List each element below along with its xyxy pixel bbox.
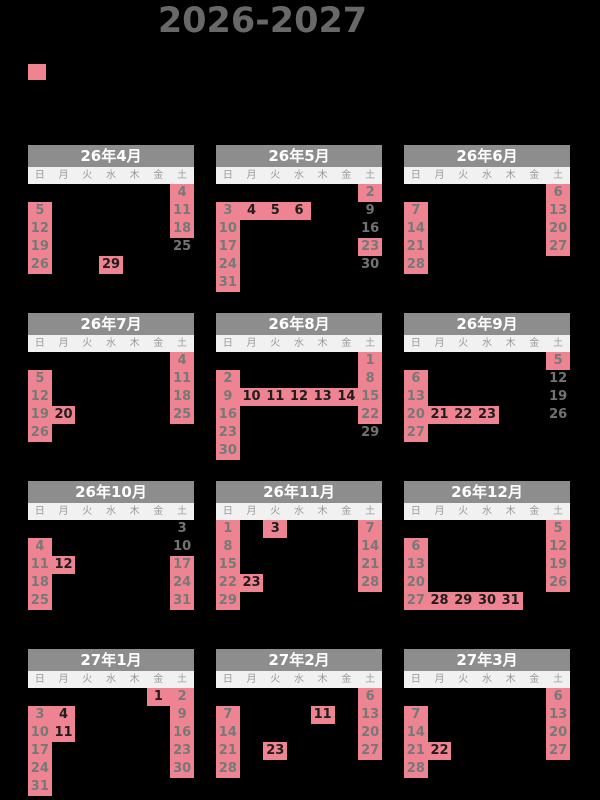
weekday-label: 木: [499, 671, 523, 688]
weekday-label: 水: [475, 335, 499, 352]
weekday-label: 金: [523, 671, 547, 688]
month-days-grid: 411171824253112310: [28, 520, 194, 630]
weekday-header-row: 日月火水木金土: [28, 167, 194, 184]
day-off-date: 11: [28, 556, 52, 574]
month-calendar: 26年7月 日月火水木金土 4511121819252620: [28, 313, 194, 462]
weekday-label: 土: [546, 335, 570, 352]
day-off-date: 17: [216, 238, 240, 256]
month-days-grid: 4511121819262925: [28, 184, 194, 294]
day-off-date: 28: [216, 760, 240, 778]
weekday-label: 水: [99, 335, 123, 352]
weekday-label: 月: [428, 335, 452, 352]
month-days-grid: 5612131920262728293031: [404, 520, 570, 630]
day-off-date: 30: [216, 442, 240, 460]
day-off-date: 6: [358, 688, 382, 706]
day-off-date: 2: [216, 370, 240, 388]
weekday-label: 日: [28, 167, 52, 184]
day-off-date: 20: [404, 406, 428, 424]
holiday-date: 22: [428, 742, 452, 760]
day-off-date: 27: [358, 742, 382, 760]
weekday-label: 土: [358, 671, 382, 688]
weekday-label: 日: [216, 503, 240, 520]
weekday-label: 金: [523, 335, 547, 352]
weekday-label: 火: [451, 503, 475, 520]
weekday-label: 月: [240, 503, 264, 520]
weekday-label: 日: [216, 671, 240, 688]
day-off-date: 7: [404, 202, 428, 220]
weekday-label: 火: [451, 167, 475, 184]
working-weekend-date: 26: [546, 406, 570, 424]
holiday-date: 23: [240, 574, 264, 592]
weekday-header-row: 日月火水木金土: [28, 671, 194, 688]
month-days-grid: 239101617232430311411: [28, 688, 194, 798]
weekday-label: 木: [311, 503, 335, 520]
weekday-label: 金: [335, 503, 359, 520]
weekday-label: 金: [523, 167, 547, 184]
day-off-date: 17: [28, 742, 52, 760]
day-off-date: 20: [546, 220, 570, 238]
holiday-date: 12: [52, 556, 76, 574]
month-title: 27年2月: [216, 649, 382, 671]
day-off-date: 31: [28, 778, 52, 796]
weekday-label: 日: [28, 503, 52, 520]
day-off-date: 25: [170, 406, 194, 424]
holiday-date: 3: [263, 520, 287, 538]
month-days-grid: 178141521222829323: [216, 520, 382, 630]
weekday-label: 金: [335, 167, 359, 184]
month-title: 26年10月: [28, 481, 194, 503]
weekday-label: 水: [99, 167, 123, 184]
month-calendar: 26年5月 日月火水木金土 23101723243145691630: [216, 145, 382, 294]
weekday-label: 水: [99, 671, 123, 688]
holiday-date: 13: [311, 388, 335, 406]
day-off-date: 7: [358, 520, 382, 538]
day-off-date: 24: [170, 574, 194, 592]
month-title: 26年6月: [404, 145, 570, 167]
month-calendar: 26年12月 日月火水木金土 5612131920262728293031: [404, 481, 570, 630]
working-weekend-date: 29: [358, 424, 382, 442]
holiday-date: 4: [240, 202, 264, 220]
day-off-date: 21: [358, 556, 382, 574]
day-off-date: 27: [404, 592, 428, 610]
weekday-label: 土: [170, 503, 194, 520]
month-calendar: 26年10月 日月火水木金土 411171824253112310: [28, 481, 194, 630]
day-off-date: 13: [358, 706, 382, 724]
day-off-date: 19: [28, 406, 52, 424]
weekday-label: 土: [170, 671, 194, 688]
weekday-label: 土: [546, 503, 570, 520]
weekday-label: 月: [240, 335, 264, 352]
day-off-date: 15: [358, 388, 382, 406]
day-off-date: 5: [28, 370, 52, 388]
day-off-date: 28: [404, 760, 428, 778]
day-off-date: 24: [28, 760, 52, 778]
weekday-label: 日: [404, 167, 428, 184]
weekday-header-row: 日月火水木金土: [28, 503, 194, 520]
weekday-label: 土: [358, 335, 382, 352]
day-off-date: 19: [546, 556, 570, 574]
day-off-date: 6: [404, 538, 428, 556]
weekday-label: 日: [404, 671, 428, 688]
month-title: 26年9月: [404, 313, 570, 335]
working-weekend-date: 25: [170, 238, 194, 256]
day-off-date: 6: [546, 184, 570, 202]
weekday-label: 火: [263, 335, 287, 352]
day-off-date: 25: [28, 592, 52, 610]
weekday-label: 月: [52, 335, 76, 352]
day-off-date: 20: [404, 574, 428, 592]
day-off-date: 20: [358, 724, 382, 742]
weekday-label: 月: [428, 503, 452, 520]
day-off-date: 27: [546, 742, 570, 760]
weekday-label: 水: [99, 503, 123, 520]
day-off-date: 27: [546, 238, 570, 256]
holiday-date: 21: [428, 406, 452, 424]
weekday-label: 木: [123, 671, 147, 688]
day-off-date: 16: [170, 724, 194, 742]
day-off-date: 10: [216, 220, 240, 238]
day-off-date: 13: [404, 556, 428, 574]
holiday-date: 29: [99, 256, 123, 274]
day-off-date: 13: [546, 706, 570, 724]
day-off-date: 9: [170, 706, 194, 724]
weekday-label: 木: [499, 167, 523, 184]
weekday-label: 火: [451, 335, 475, 352]
month-days-grid: 671314202127281123: [216, 688, 382, 798]
day-off-date: 8: [216, 538, 240, 556]
day-off-date: 9: [216, 388, 240, 406]
weekday-label: 金: [147, 503, 171, 520]
day-off-date: 2: [170, 688, 194, 706]
weekday-label: 日: [28, 671, 52, 688]
month-title: 26年4月: [28, 145, 194, 167]
day-off-date: 14: [404, 724, 428, 742]
day-off-date: 17: [170, 556, 194, 574]
month-days-grid: 56132027212223121926: [404, 352, 570, 462]
weekday-label: 土: [170, 335, 194, 352]
weekday-label: 木: [123, 167, 147, 184]
day-off-date: 23: [358, 238, 382, 256]
day-off-date: 5: [546, 352, 570, 370]
day-off-date: 7: [216, 706, 240, 724]
weekday-label: 月: [428, 167, 452, 184]
weekday-label: 金: [335, 671, 359, 688]
month-days-grid: 67131420212728: [404, 184, 570, 294]
calendar-page: 2026-2027 26年4月 日月火水木金土 4511121819262925…: [0, 0, 600, 800]
holiday-date: 10: [240, 388, 264, 406]
month-calendar: 26年11月 日月火水木金土 178141521222829323: [216, 481, 382, 630]
working-weekend-date: 16: [358, 220, 382, 238]
month-calendar: 26年9月 日月火水木金土 56132027212223121926: [404, 313, 570, 462]
day-off-date: 6: [546, 688, 570, 706]
month-calendar: 26年8月 日月火水木金土 12891516222330101112131429: [216, 313, 382, 462]
day-off-date: 14: [404, 220, 428, 238]
holiday-date: 28: [428, 592, 452, 610]
holiday-date: 20: [52, 406, 76, 424]
weekday-label: 水: [475, 671, 499, 688]
weekday-label: 水: [287, 335, 311, 352]
day-off-date: 12: [28, 388, 52, 406]
month-title: 27年3月: [404, 649, 570, 671]
weekday-label: 水: [287, 503, 311, 520]
day-off-date: 4: [170, 184, 194, 202]
day-off-date: 11: [170, 202, 194, 220]
weekday-label: 土: [170, 167, 194, 184]
holiday-date: 29: [451, 592, 475, 610]
holiday-date: 30: [475, 592, 499, 610]
weekday-header-row: 日月火水木金土: [404, 503, 570, 520]
weekday-header-row: 日月火水木金土: [404, 335, 570, 352]
day-off-date: 3: [216, 202, 240, 220]
weekday-label: 土: [546, 167, 570, 184]
day-off-date: 10: [28, 724, 52, 742]
holiday-date: 14: [335, 388, 359, 406]
weekday-label: 火: [263, 671, 287, 688]
month-days-grid: 23101723243145691630: [216, 184, 382, 294]
weekday-header-row: 日月火水木金土: [404, 167, 570, 184]
month-title: 26年11月: [216, 481, 382, 503]
day-off-date: 13: [404, 388, 428, 406]
weekday-label: 火: [75, 335, 99, 352]
working-weekend-date: 3: [170, 520, 194, 538]
day-off-date: 14: [216, 724, 240, 742]
holiday-date: 11: [263, 388, 287, 406]
weekday-label: 土: [358, 167, 382, 184]
day-off-date: 1: [358, 352, 382, 370]
weekday-label: 水: [287, 167, 311, 184]
working-weekend-date: 19: [546, 388, 570, 406]
day-off-date: 18: [170, 220, 194, 238]
weekday-label: 金: [523, 503, 547, 520]
month-days-grid: 6713142021272822: [404, 688, 570, 798]
weekday-label: 月: [52, 671, 76, 688]
holiday-date: 31: [499, 592, 523, 610]
day-off-date: 21: [216, 742, 240, 760]
holiday-date: 12: [287, 388, 311, 406]
day-off-date: 27: [404, 424, 428, 442]
weekday-label: 金: [147, 671, 171, 688]
day-off-date: 14: [358, 538, 382, 556]
weekday-label: 火: [75, 167, 99, 184]
month-title: 27年1月: [28, 649, 194, 671]
holiday-date: 23: [475, 406, 499, 424]
day-off-date: 5: [546, 520, 570, 538]
weekday-label: 水: [475, 503, 499, 520]
holiday-date: 6: [287, 202, 311, 220]
weekday-label: 木: [499, 335, 523, 352]
weekday-label: 火: [75, 671, 99, 688]
weekday-label: 木: [123, 335, 147, 352]
weekday-label: 火: [451, 671, 475, 688]
working-weekend-date: 10: [170, 538, 194, 556]
month-title: 26年12月: [404, 481, 570, 503]
day-off-date: 31: [216, 274, 240, 292]
day-off-date: 21: [404, 742, 428, 760]
weekday-header-row: 日月火水木金土: [216, 671, 382, 688]
day-off-date: 16: [216, 406, 240, 424]
weekday-label: 日: [216, 335, 240, 352]
day-off-date: 26: [546, 574, 570, 592]
weekday-label: 土: [546, 671, 570, 688]
holiday-date: 11: [52, 724, 76, 742]
day-off-date: 23: [216, 424, 240, 442]
day-off-date: 15: [216, 556, 240, 574]
day-off-date: 6: [404, 370, 428, 388]
months-grid: 26年4月 日月火水木金土 4511121819262925 26年5月 日月火…: [0, 0, 600, 800]
day-off-date: 22: [358, 406, 382, 424]
month-title: 26年8月: [216, 313, 382, 335]
weekday-label: 月: [240, 671, 264, 688]
weekday-label: 月: [428, 671, 452, 688]
day-off-date: 29: [216, 592, 240, 610]
weekday-header-row: 日月火水木金土: [28, 335, 194, 352]
day-off-date: 4: [170, 352, 194, 370]
day-off-date: 22: [216, 574, 240, 592]
day-off-date: 4: [28, 538, 52, 556]
day-off-date: 11: [170, 370, 194, 388]
weekday-label: 金: [335, 335, 359, 352]
weekday-label: 日: [404, 335, 428, 352]
day-off-date: 23: [170, 742, 194, 760]
day-off-date: 5: [28, 202, 52, 220]
weekday-label: 木: [311, 671, 335, 688]
day-off-date: 2: [358, 184, 382, 202]
month-calendar: 27年2月 日月火水木金土 671314202127281123: [216, 649, 382, 798]
working-weekend-date: 9: [358, 202, 382, 220]
day-off-date: 20: [546, 724, 570, 742]
day-off-date: 18: [28, 574, 52, 592]
day-off-date: 1: [216, 520, 240, 538]
weekday-label: 火: [263, 503, 287, 520]
holiday-date: 4: [52, 706, 76, 724]
holiday-date: 22: [451, 406, 475, 424]
day-off-date: 13: [546, 202, 570, 220]
day-off-date: 21: [404, 238, 428, 256]
weekday-label: 木: [123, 503, 147, 520]
weekday-header-row: 日月火水木金土: [216, 503, 382, 520]
day-off-date: 19: [28, 238, 52, 256]
weekday-label: 土: [358, 503, 382, 520]
weekday-label: 水: [287, 671, 311, 688]
weekday-label: 木: [499, 503, 523, 520]
weekday-label: 金: [147, 167, 171, 184]
day-off-date: 7: [404, 706, 428, 724]
working-weekend-date: 30: [358, 256, 382, 274]
day-off-date: 8: [358, 370, 382, 388]
day-off-date: 28: [404, 256, 428, 274]
weekday-label: 金: [147, 335, 171, 352]
weekday-label: 月: [240, 167, 264, 184]
day-off-date: 24: [216, 256, 240, 274]
holiday-date: 1: [147, 688, 171, 706]
day-off-date: 26: [28, 256, 52, 274]
day-off-date: 30: [170, 760, 194, 778]
day-off-date: 26: [28, 424, 52, 442]
month-days-grid: 4511121819252620: [28, 352, 194, 462]
working-weekend-date: 12: [546, 370, 570, 388]
weekday-label: 水: [475, 167, 499, 184]
day-off-date: 28: [358, 574, 382, 592]
weekday-label: 木: [311, 167, 335, 184]
weekday-label: 木: [311, 335, 335, 352]
weekday-label: 日: [216, 167, 240, 184]
weekday-label: 火: [75, 503, 99, 520]
weekday-label: 日: [404, 503, 428, 520]
holiday-date: 11: [311, 706, 335, 724]
month-days-grid: 12891516222330101112131429: [216, 352, 382, 462]
holiday-date: 5: [263, 202, 287, 220]
weekday-header-row: 日月火水木金土: [404, 671, 570, 688]
day-off-date: 31: [170, 592, 194, 610]
holiday-date: 23: [263, 742, 287, 760]
weekday-label: 月: [52, 503, 76, 520]
day-off-date: 18: [170, 388, 194, 406]
month-calendar: 26年4月 日月火水木金土 4511121819262925: [28, 145, 194, 294]
weekday-label: 火: [263, 167, 287, 184]
month-title: 26年7月: [28, 313, 194, 335]
month-calendar: 26年6月 日月火水木金土 67131420212728: [404, 145, 570, 294]
month-calendar: 27年3月 日月火水木金土 6713142021272822: [404, 649, 570, 798]
weekday-label: 日: [28, 335, 52, 352]
weekday-header-row: 日月火水木金土: [216, 335, 382, 352]
month-calendar: 27年1月 日月火水木金土 239101617232430311411: [28, 649, 194, 798]
day-off-date: 3: [28, 706, 52, 724]
day-off-date: 12: [28, 220, 52, 238]
weekday-label: 月: [52, 167, 76, 184]
month-title: 26年5月: [216, 145, 382, 167]
day-off-date: 12: [546, 538, 570, 556]
weekday-header-row: 日月火水木金土: [216, 167, 382, 184]
